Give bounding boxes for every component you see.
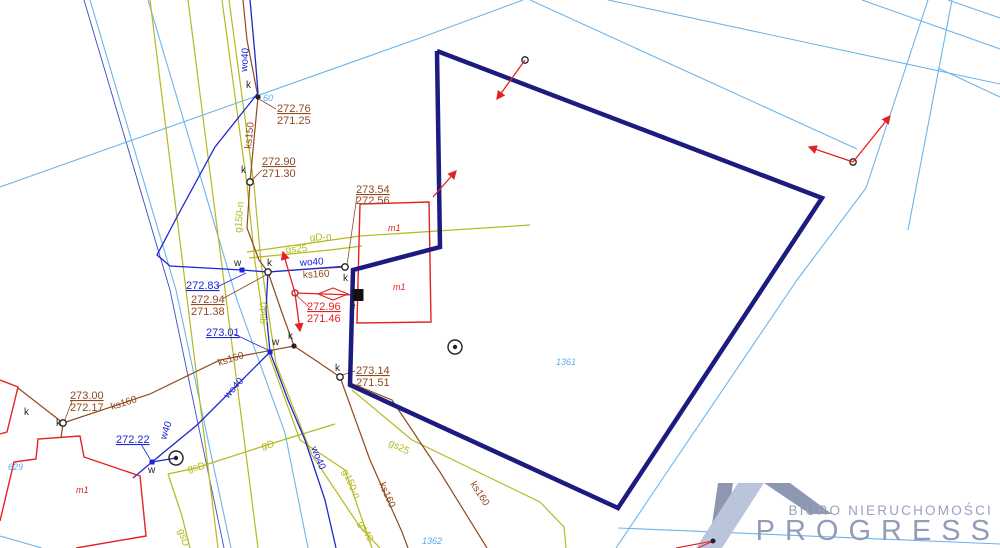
line-type-label: w40 — [158, 420, 175, 442]
line-type-label: k — [246, 80, 252, 91]
elevation-label: 629 — [8, 462, 23, 472]
road-edge-line — [908, 0, 952, 230]
leader-line — [141, 444, 150, 459]
line-type-label: k — [343, 273, 349, 284]
direction-arrow — [497, 60, 525, 99]
elevation-label: 272.96 — [307, 301, 341, 313]
survey-point — [291, 343, 296, 348]
boundary-line — [862, 0, 1000, 49]
line-type-label: ks160 — [303, 269, 331, 281]
line-type-label: gD — [261, 439, 275, 452]
water-line-w40 — [152, 352, 270, 462]
labels-layer: 272.76271.25272.90271.30273.54272.56272.… — [8, 47, 576, 548]
direction-arrow — [853, 116, 890, 162]
line-type-label: w — [271, 337, 280, 348]
line-type-label: ks160 — [110, 394, 139, 413]
leader-line — [217, 273, 246, 287]
elevation-label: 272.76 — [277, 103, 311, 115]
sewer-line-ks160 — [340, 377, 408, 548]
line-type-label: e — [350, 301, 356, 312]
building-outline — [357, 202, 431, 323]
line-type-label: gsD — [186, 461, 206, 475]
building-outline — [0, 380, 18, 434]
building-outline — [0, 436, 146, 548]
line-type-label: wo40 — [298, 256, 324, 269]
line-type-label: ks160 — [376, 481, 397, 510]
elevation-label: 273.00 — [70, 390, 104, 402]
survey-point — [255, 94, 260, 99]
water-point — [150, 460, 155, 465]
sewer-line — [294, 346, 340, 377]
line-type-label: ks160 — [217, 350, 246, 369]
line-type-label: k — [267, 258, 273, 269]
watermark-text-line2: PROGRESS — [756, 515, 1000, 548]
boundary-line — [948, 0, 1000, 18]
elevation-label: 272.56 — [356, 195, 390, 207]
direction-arrow — [283, 252, 295, 293]
elevation-label: 272.83 — [186, 280, 220, 292]
water-line-wo40 — [270, 352, 336, 548]
survey-point — [337, 374, 343, 380]
line-type-label: m1 — [393, 282, 406, 292]
line-type-label: gs40 — [257, 301, 270, 324]
elevation-label: 271.51 — [356, 377, 390, 389]
parcel-layer — [350, 51, 822, 508]
boundary-line — [530, 0, 857, 149]
survey-point — [247, 179, 253, 185]
line-type-label: m1 — [76, 485, 89, 495]
line-type-label: m1 — [388, 223, 401, 233]
direction-arrow — [433, 171, 456, 197]
line-type-label: gs25 — [285, 243, 308, 256]
line-type-label: ks150 — [243, 121, 257, 149]
line-type-label: g150-n — [233, 201, 247, 233]
line-type-label: k — [335, 363, 341, 374]
elevation-label: 272.90 — [262, 156, 296, 168]
map-canvas: 272.76271.25272.90271.30273.54272.56272.… — [0, 0, 1000, 548]
elevation-label: 1362 — [422, 536, 442, 546]
logo-survey-point — [711, 539, 716, 544]
line-type-label: ks160 — [467, 480, 491, 509]
elevation-label: 271.38 — [191, 306, 225, 318]
line-type-label: wo40 — [239, 47, 252, 73]
manhole-point — [342, 264, 348, 270]
watermark-logo: BIURO NIERUCHOMOŚCI PROGRESS — [660, 470, 1000, 548]
elevation-label: 271.46 — [307, 313, 341, 325]
cadastral-map-view: 272.76271.25272.90271.30273.54272.56272.… — [0, 0, 1000, 548]
line-type-label: w — [233, 258, 242, 269]
energy-box — [353, 289, 364, 301]
line-type-label: gs25 — [387, 438, 412, 458]
survey-point — [265, 269, 271, 275]
boundary-line — [148, 0, 308, 548]
direction-arrow — [809, 147, 853, 162]
elevation-label: 60 — [263, 93, 273, 103]
parcel-1361-boundary — [350, 51, 822, 508]
elevation-label: 271.25 — [277, 115, 311, 127]
line-type-label: gsD — [175, 528, 191, 548]
design-line — [295, 293, 353, 295]
elevation-label: 273.14 — [356, 365, 390, 377]
elevation-label: 272.17 — [70, 402, 104, 414]
elevation-label: 271.30 — [262, 168, 296, 180]
elevation-label: 273.01 — [206, 327, 240, 339]
gas-line-g150n — [150, 0, 218, 548]
boundary-line — [0, 536, 42, 548]
water-point — [268, 350, 273, 355]
line-type-label: k — [24, 407, 30, 418]
elevation-label: 272.94 — [191, 294, 225, 306]
line-type-label: k — [288, 331, 294, 342]
direction-arrow — [295, 293, 300, 331]
elevation-label: 1361 — [556, 357, 576, 367]
elevation-label: 272.22 — [116, 434, 150, 446]
sewer-line-ks160 — [348, 382, 487, 548]
line-type-label: g150-n — [339, 468, 362, 501]
line-type-label: gD-n — [309, 232, 331, 244]
well-symbol — [174, 456, 178, 460]
boundary-line — [608, 0, 1000, 84]
line-type-label: w — [147, 465, 156, 476]
well-symbol — [453, 345, 457, 349]
